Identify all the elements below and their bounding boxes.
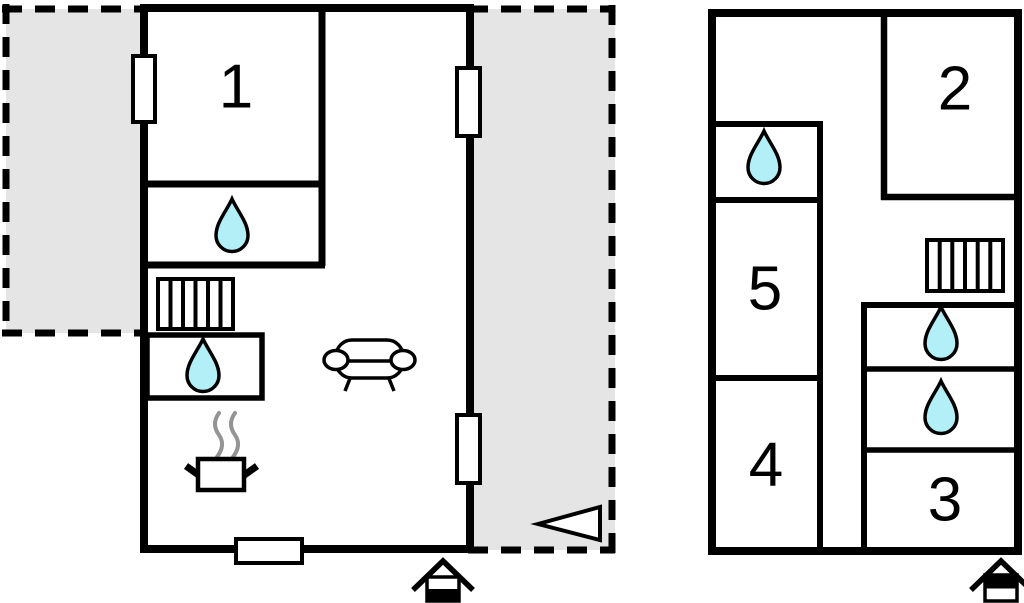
window-left-wall xyxy=(133,56,155,122)
floor-plan-left: 1 xyxy=(133,4,480,563)
stairs-icon xyxy=(158,279,233,329)
room-label-3: 3 xyxy=(928,466,962,535)
room-label-4: 4 xyxy=(749,431,783,500)
window-right-wall-top xyxy=(457,68,480,136)
terrace-right-area xyxy=(468,9,615,550)
terrace-left xyxy=(2,4,145,336)
room-label-2: 2 xyxy=(938,55,972,124)
floor-plan-canvas: 1 xyxy=(0,0,1024,603)
room-label-1: 1 xyxy=(219,53,253,122)
storey-indicator-ground-icon xyxy=(413,561,473,601)
door-bottom-wall xyxy=(236,539,302,563)
floor-plan-page: 1 xyxy=(0,0,1024,603)
room-label-5: 5 xyxy=(748,255,782,324)
stairs-icon xyxy=(927,240,1003,291)
terrace-right xyxy=(468,5,615,553)
terrace-left-area xyxy=(6,9,145,333)
window-right-wall-bottom xyxy=(457,415,480,483)
floor-plan-right: 2 5 4 3 xyxy=(712,9,1018,551)
storey-indicator-upper-icon xyxy=(971,561,1024,601)
